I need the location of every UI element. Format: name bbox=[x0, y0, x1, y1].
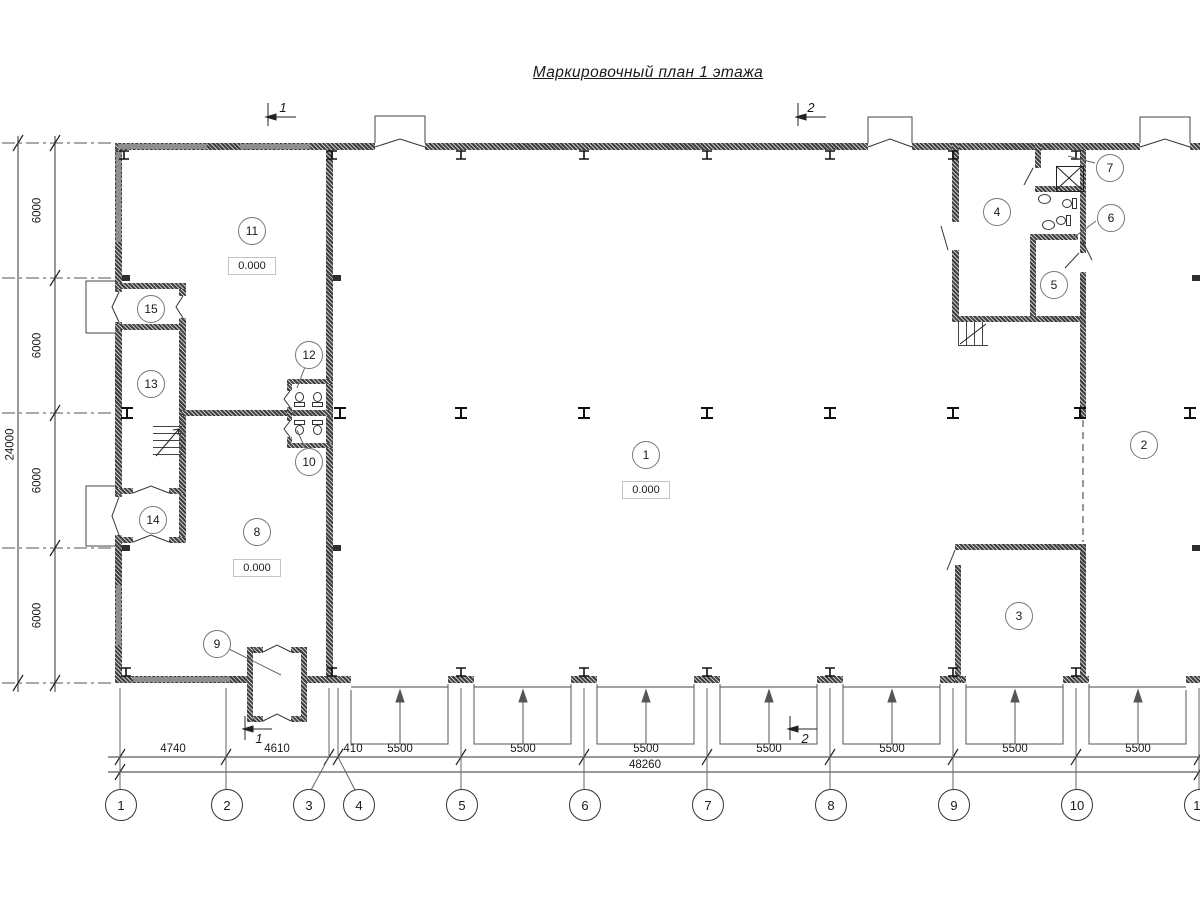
room-number: 7 bbox=[1107, 161, 1114, 175]
room-number: 4 bbox=[994, 205, 1001, 219]
dim-5500: 5500 bbox=[985, 743, 1045, 756]
axis-bubble-9: 9 bbox=[938, 789, 970, 821]
room-number: 13 bbox=[144, 377, 157, 391]
dimension-lines bbox=[18, 136, 1200, 772]
dim-5500: 5500 bbox=[1108, 743, 1168, 756]
axis-number: 2 bbox=[223, 798, 230, 813]
room-marker-11: 11 bbox=[238, 217, 266, 245]
axis-bubble-7: 7 bbox=[692, 789, 724, 821]
axis-bubble-5: 5 bbox=[446, 789, 478, 821]
floor-plan-canvas: Маркировочный план 1 этажа 4740 4610 410… bbox=[0, 0, 1200, 900]
axis-bubble-3: 3 bbox=[293, 789, 325, 821]
dim-6000: 6000 bbox=[32, 586, 45, 646]
room-marker-2: 2 bbox=[1130, 431, 1158, 459]
room-number: 9 bbox=[214, 637, 221, 651]
room-number: 1 bbox=[643, 448, 650, 462]
level-mark: 0.000 bbox=[228, 257, 276, 275]
section-mark-1-top: 1 bbox=[273, 100, 293, 115]
room-number: 12 bbox=[302, 348, 315, 362]
entrance-arrows bbox=[396, 690, 1142, 744]
axis-number: 3 bbox=[305, 798, 312, 813]
section-marks bbox=[243, 103, 826, 740]
level-value: 0.000 bbox=[632, 484, 660, 496]
room-number: 15 bbox=[144, 302, 157, 316]
axis-bubble-1: 1 bbox=[105, 789, 137, 821]
dim-5500: 5500 bbox=[862, 743, 922, 756]
room-marker-3: 3 bbox=[1005, 602, 1033, 630]
level-mark: 0.000 bbox=[233, 559, 281, 577]
room-marker-15: 15 bbox=[137, 295, 165, 323]
dimension-ticks bbox=[13, 135, 1200, 780]
dim-4740: 4740 bbox=[143, 743, 203, 756]
room-marker-12: 12 bbox=[295, 341, 323, 369]
room-number: 8 bbox=[254, 525, 261, 539]
axis-leader-lines bbox=[120, 688, 1199, 790]
room-marker-6: 6 bbox=[1097, 204, 1125, 232]
axis-number: 9 bbox=[950, 798, 957, 813]
level-mark: 0.000 bbox=[622, 481, 670, 499]
dim-6000: 6000 bbox=[32, 451, 45, 511]
room-number: 10 bbox=[302, 455, 315, 469]
room-marker-5: 5 bbox=[1040, 271, 1068, 299]
axis-bubble-2: 2 bbox=[211, 789, 243, 821]
dim-6000: 6000 bbox=[32, 316, 45, 376]
dim-5500: 5500 bbox=[739, 743, 799, 756]
axis-bubble-10: 10 bbox=[1061, 789, 1093, 821]
room-marker-7: 7 bbox=[1096, 154, 1124, 182]
dim-5500: 5500 bbox=[493, 743, 553, 756]
section-mark-2-bottom: 2 bbox=[795, 731, 815, 746]
dim-total: 48260 bbox=[615, 759, 675, 772]
room-number: 14 bbox=[146, 513, 159, 527]
room-marker-4: 4 bbox=[983, 198, 1011, 226]
axis-number: 1 bbox=[117, 798, 124, 813]
ax-bubble-4: 4 bbox=[343, 789, 375, 821]
room-number: 5 bbox=[1051, 278, 1058, 292]
grid-axis-lines bbox=[2, 143, 114, 683]
drawing-title: Маркировочный план 1 этажа bbox=[448, 64, 848, 82]
axis-number: 11 bbox=[1193, 798, 1200, 813]
axis-bubble-8: 8 bbox=[815, 789, 847, 821]
axis-number: 10 bbox=[1070, 798, 1084, 813]
room-marker-1: 1 bbox=[632, 441, 660, 469]
room-leader-lines bbox=[229, 156, 1096, 675]
axis-number: 6 bbox=[581, 798, 588, 813]
dim-vtotal: 24000 bbox=[5, 415, 18, 475]
room-number: 2 bbox=[1141, 438, 1148, 452]
door-leaves bbox=[941, 168, 1092, 570]
room-marker-9: 9 bbox=[203, 630, 231, 658]
axis-bubble-6: 6 bbox=[569, 789, 601, 821]
level-value: 0.000 bbox=[238, 260, 266, 272]
room-number: 11 bbox=[246, 224, 258, 238]
room-number: 3 bbox=[1016, 609, 1023, 623]
section-mark-1-bottom: 1 bbox=[249, 731, 269, 746]
dim-6000: 6000 bbox=[32, 181, 45, 241]
section-mark-2-top: 2 bbox=[801, 100, 821, 115]
dim-5500: 5500 bbox=[370, 743, 430, 756]
room-marker-13: 13 bbox=[137, 370, 165, 398]
room-marker-14: 14 bbox=[139, 506, 167, 534]
axis-number: 4 bbox=[355, 798, 362, 813]
dim-5500: 5500 bbox=[616, 743, 676, 756]
room-marker-8: 8 bbox=[243, 518, 271, 546]
fixture-details bbox=[156, 166, 1082, 456]
door-break-chevrons bbox=[112, 139, 1190, 721]
room-number: 6 bbox=[1108, 211, 1115, 225]
column-icons bbox=[119, 151, 1196, 676]
level-value: 0.000 bbox=[243, 562, 271, 574]
linework bbox=[0, 0, 1200, 900]
axis-number: 8 bbox=[827, 798, 834, 813]
axis-number: 7 bbox=[704, 798, 711, 813]
room-marker-10: 10 bbox=[295, 448, 323, 476]
axis-number: 5 bbox=[458, 798, 465, 813]
